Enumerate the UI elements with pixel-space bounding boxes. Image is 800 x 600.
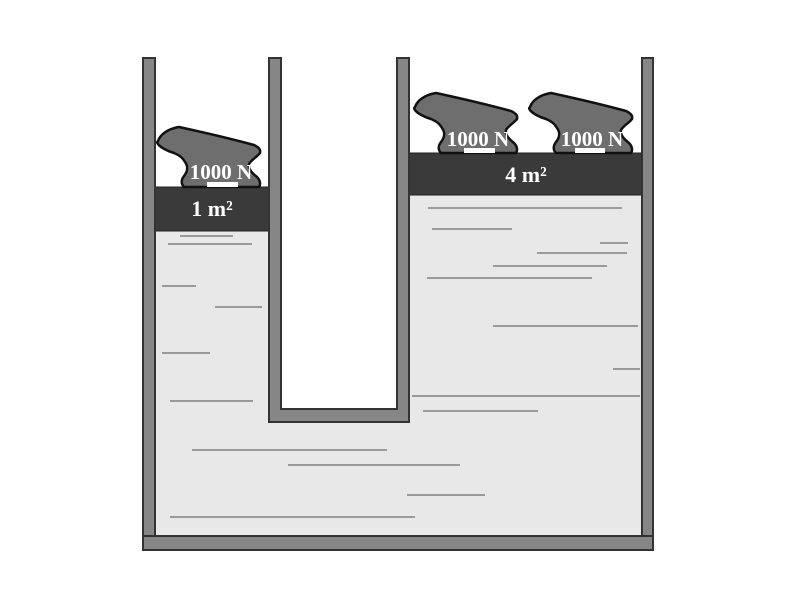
- left-piston: 1 m²: [155, 187, 269, 231]
- left-anvil-weight: 1000 N: [157, 127, 260, 187]
- u-tube-hydraulic-diagram: 1 m² 4 m² 1000 N 1000 N 1: [0, 0, 800, 600]
- right-piston: 4 m²: [409, 153, 642, 195]
- bottom-wall: [143, 536, 653, 550]
- left-piston-area-label: 1 m²: [191, 196, 233, 221]
- left-anvil-weight-label: 1000 N: [190, 160, 252, 184]
- left-outer-wall: [143, 58, 155, 550]
- right-anvil-weight-2: 1000 N: [529, 93, 632, 153]
- right-outer-wall: [642, 58, 653, 550]
- right-anvil-weight-1: 1000 N: [414, 93, 517, 153]
- right-anvil-weight-2-label: 1000 N: [561, 127, 623, 151]
- center-divider-wall: [269, 58, 409, 422]
- diagram-canvas: 1 m² 4 m² 1000 N 1000 N 1: [0, 0, 800, 600]
- right-piston-area-label: 4 m²: [505, 162, 547, 187]
- right-anvil-weight-1-label: 1000 N: [447, 127, 509, 151]
